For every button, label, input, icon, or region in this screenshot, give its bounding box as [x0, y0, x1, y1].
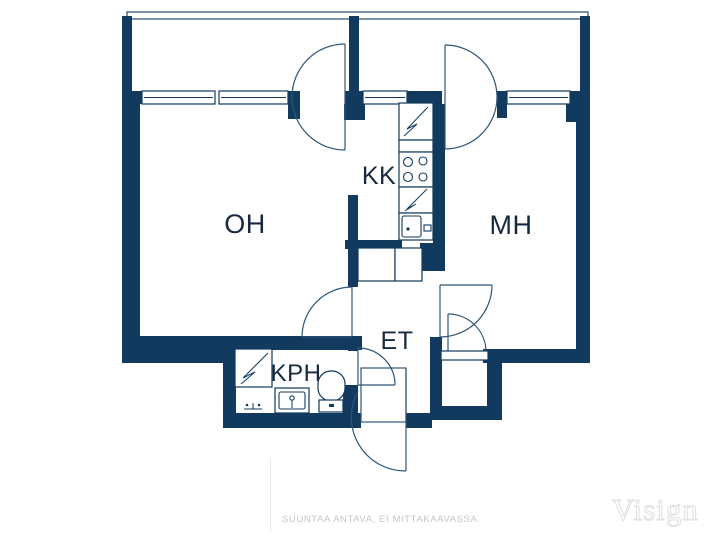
room-label-livingroom: OH — [224, 209, 266, 239]
wall-stub — [497, 104, 507, 118]
kitchen-fixtures — [399, 103, 433, 240]
wall-north-pier — [345, 91, 364, 104]
wall-door-jamb — [497, 91, 507, 104]
wardrobe-icon — [358, 248, 395, 281]
wall-west — [122, 104, 140, 337]
counter-icon — [399, 140, 433, 152]
sink-drain — [406, 227, 409, 230]
toilet-button — [329, 404, 334, 407]
balcony-wall-right — [580, 16, 590, 92]
wall-south-livingroom — [122, 336, 223, 363]
fridge-icon — [399, 103, 433, 140]
closet-door-icon — [448, 314, 486, 352]
wall-north-kitchen — [407, 91, 442, 104]
wall-south-entry-left — [223, 413, 361, 428]
wall-door-jamb — [288, 91, 300, 104]
room-label-hallway: ET — [381, 327, 414, 355]
footer-divider-line — [270, 458, 271, 532]
shower-dot — [258, 404, 261, 407]
closet-door-leaf — [441, 351, 488, 360]
wall-south-entry-right — [406, 413, 432, 428]
floor-plan-page: OH KK MH ET KPH SUUNTAA ANTAVA, EI MITTA… — [0, 0, 720, 540]
wall-hall-west-lower — [348, 337, 358, 351]
room-label-bathroom: KPH — [271, 360, 322, 387]
wall-closet-left — [430, 337, 442, 420]
visign-logo: Visign — [612, 492, 712, 528]
wall-closet-right — [487, 352, 502, 420]
toilet-icon — [318, 371, 345, 401]
wall-stub-pier — [344, 104, 365, 120]
balcony-wall-left — [122, 16, 132, 92]
balcony-divider-wall — [349, 16, 359, 92]
wall-kitchen-bedroom — [433, 104, 445, 247]
wall-hall-west-upper — [348, 248, 358, 287]
livingroom-door — [302, 287, 352, 337]
balcony-door-right — [445, 45, 497, 149]
wall-north-corner-left — [122, 91, 142, 104]
wall-bathroom-top — [223, 336, 362, 350]
disclaimer-text: SUUNTAA ANTAVA, EI MITTAKAAVASSA. — [282, 514, 481, 525]
wall-east — [576, 104, 590, 363]
stove-icon — [399, 152, 433, 187]
shower-dot — [246, 404, 249, 407]
wall-north-corner-right — [570, 91, 590, 104]
wall-livingroom-kitchen — [348, 195, 358, 248]
room-label-bedroom: MH — [490, 210, 533, 240]
wardrobe-icon — [395, 248, 422, 281]
floor-plan-drawing: OH KK MH ET KPH — [0, 0, 720, 540]
wall-hall-corner-block — [420, 243, 445, 271]
room-label-kitchenette: KK — [362, 162, 396, 190]
sink-icon — [399, 213, 433, 240]
